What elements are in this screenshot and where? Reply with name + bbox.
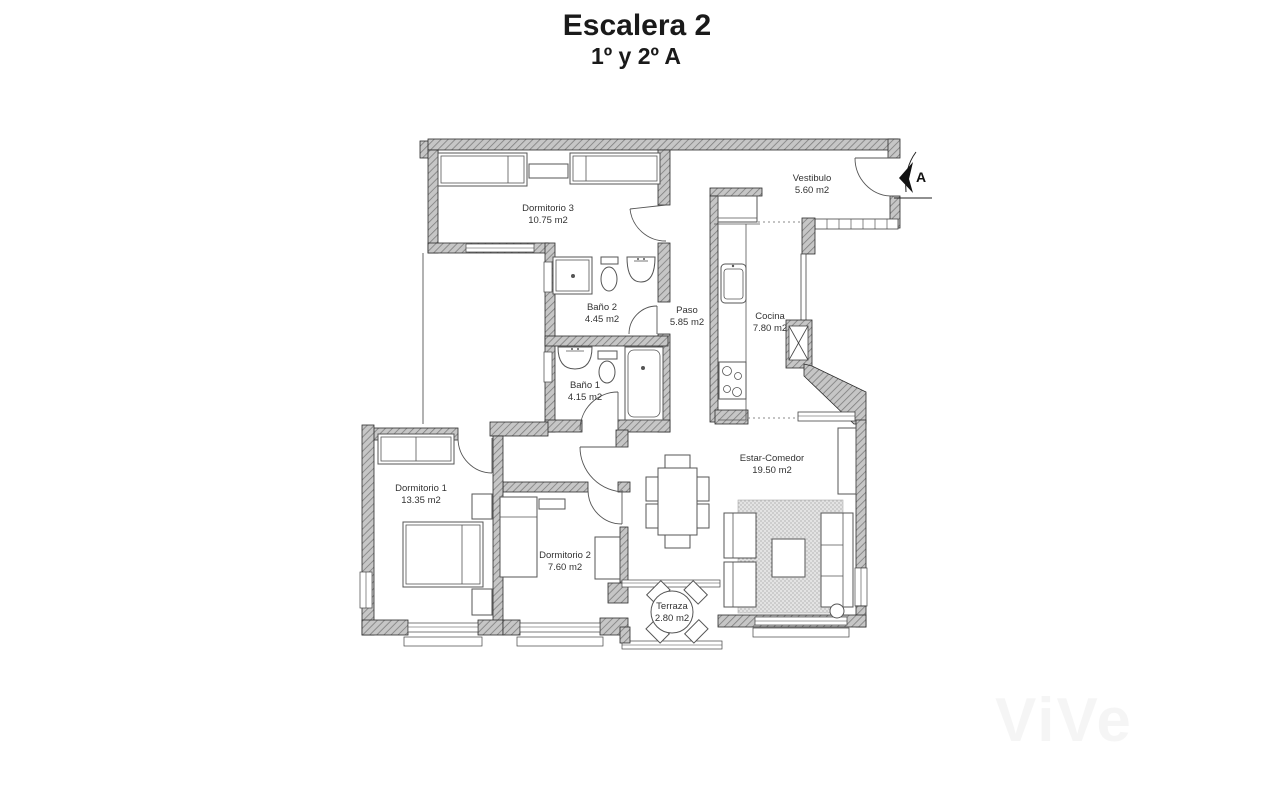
- area-bano2: 4.45 m2: [585, 314, 619, 325]
- watermark-logo: ViVe: [995, 685, 1133, 756]
- area-cocina: 7.80 m2: [753, 323, 787, 334]
- dormitorio1-furniture: [378, 434, 492, 615]
- dormitorio3-furniture: [438, 153, 660, 186]
- area-estar: 19.50 m2: [752, 465, 792, 476]
- floor-plan-svg: Escalera 2 1º y 2º A: [0, 0, 1280, 800]
- area-vestibulo: 5.60 m2: [795, 185, 829, 196]
- label-dormitorio1: Dormitorio 1: [395, 483, 447, 494]
- page-title: Escalera 2: [563, 9, 711, 42]
- label-paso: Paso: [676, 305, 698, 316]
- area-dormitorio2: 7.60 m2: [548, 562, 582, 573]
- page-subtitle: 1º y 2º A: [591, 43, 681, 69]
- label-vestibulo: Vestibulo: [793, 173, 832, 184]
- label-bano1: Baño 1: [570, 380, 600, 391]
- cocina-fixtures: [714, 196, 760, 420]
- label-cocina: Cocina: [755, 311, 785, 322]
- label-estar: Estar-Comedor: [740, 453, 804, 464]
- area-dormitorio3: 10.75 m2: [528, 215, 568, 226]
- area-terraza: 2.80 m2: [655, 613, 689, 624]
- bano2-fixtures: [553, 257, 655, 294]
- label-dormitorio3: Dormitorio 3: [522, 203, 574, 214]
- label-bano2: Baño 2: [587, 302, 617, 313]
- area-paso: 5.85 m2: [670, 317, 704, 328]
- area-dormitorio1: 13.35 m2: [401, 495, 441, 506]
- area-bano1: 4.15 m2: [568, 392, 602, 403]
- label-terraza: Terraza: [656, 601, 688, 612]
- section-marker: A: [894, 152, 932, 198]
- section-marker-label: A: [916, 169, 926, 185]
- label-dormitorio2: Dormitorio 2: [539, 550, 591, 561]
- floor-plan-page: Escalera 2 1º y 2º A: [0, 0, 1280, 800]
